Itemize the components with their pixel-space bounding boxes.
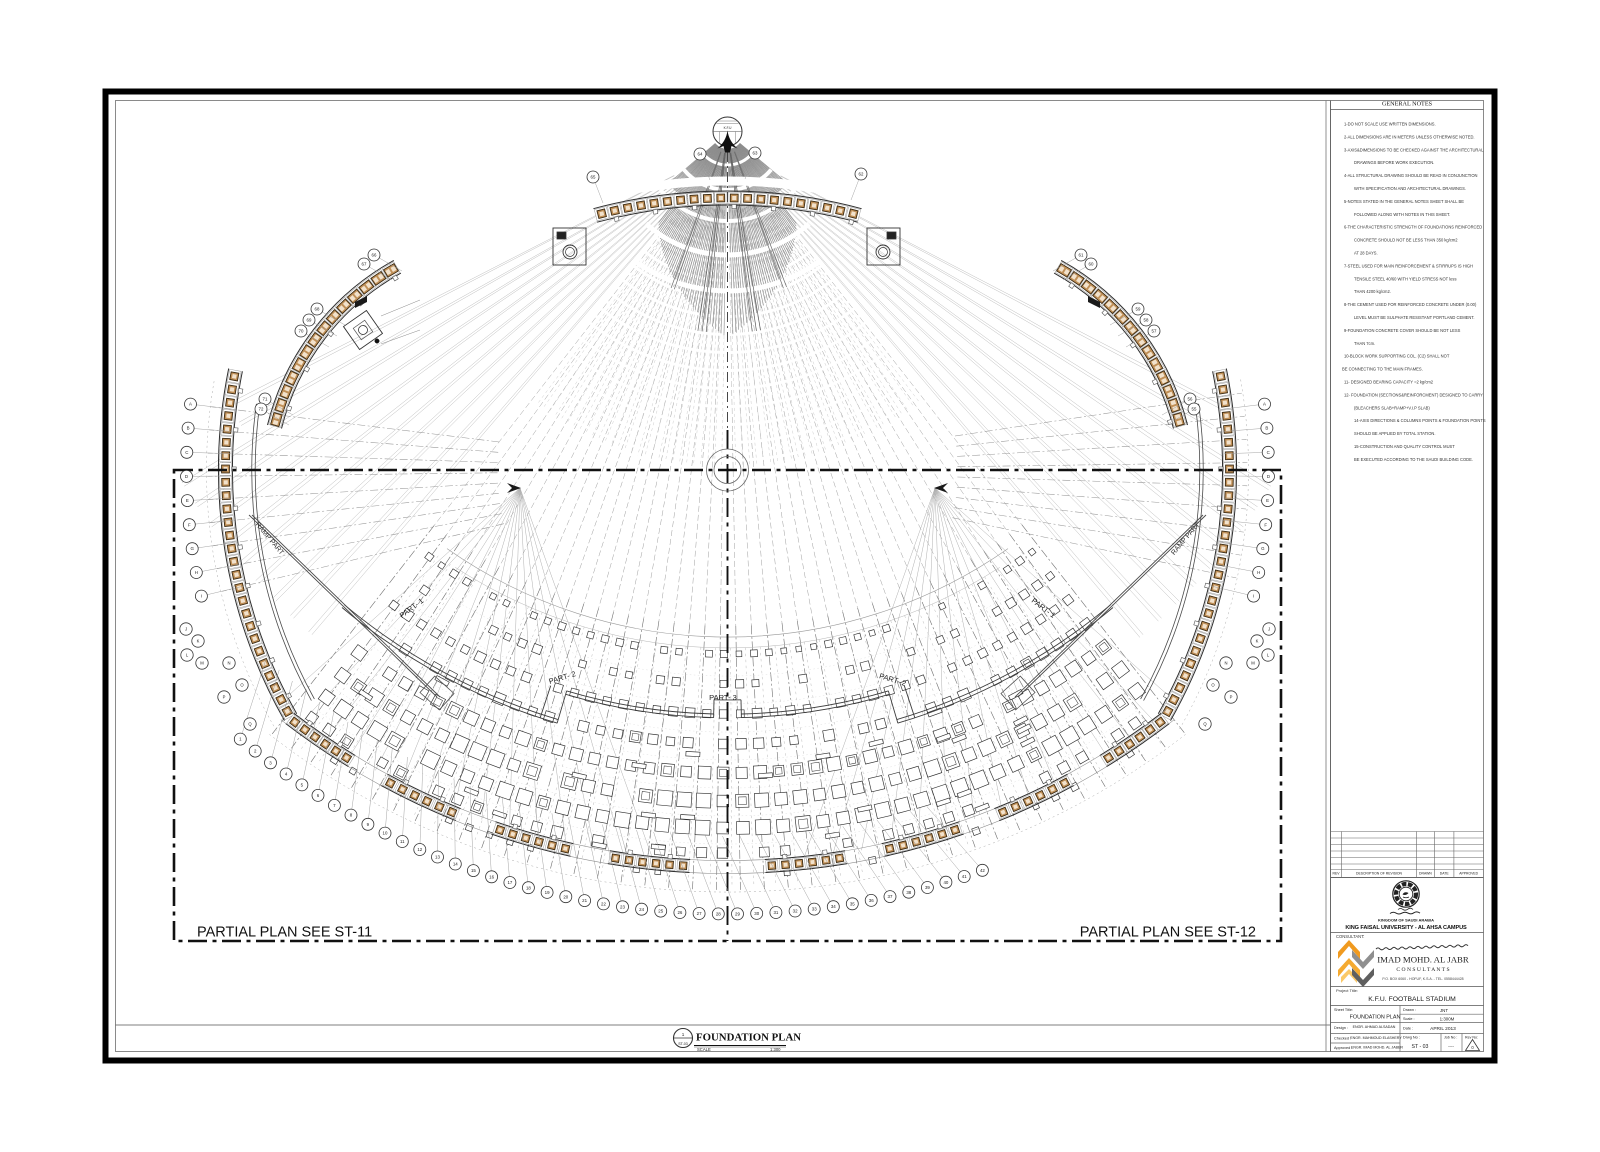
- svg-text:THAN 4200 kg/cm2.: THAN 4200 kg/cm2.: [1354, 289, 1391, 294]
- svg-text:I: I: [1253, 594, 1254, 599]
- svg-text:55: 55: [1192, 407, 1197, 412]
- svg-text:N: N: [1224, 661, 1227, 666]
- svg-text:IMAD MOHD. AL JABR: IMAD MOHD. AL JABR: [1377, 955, 1469, 965]
- svg-text:K: K: [197, 639, 200, 644]
- svg-text:23: 23: [620, 904, 625, 909]
- svg-text:14-AXIS DIRECTIONS & COLUMNS P: 14-AXIS DIRECTIONS & COLUMNS POINTS & FO…: [1354, 418, 1486, 423]
- svg-text:H: H: [1257, 570, 1260, 575]
- svg-text:CONCRETE SHOULD NOT BE LESS TH: CONCRETE SHOULD NOT BE LESS THAN 350 kg/…: [1354, 238, 1458, 243]
- svg-text:DRAWINGS BEFORE WORK EXECUTION: DRAWINGS BEFORE WORK EXECUTION.: [1354, 160, 1434, 165]
- svg-text:A: A: [189, 402, 192, 407]
- svg-text:TENSILE STEEL 40/60 WITH YIELD: TENSILE STEEL 40/60 WITH YIELD STRESS NO…: [1354, 276, 1457, 281]
- svg-text:13: 13: [435, 855, 440, 860]
- svg-text:M: M: [1251, 661, 1255, 666]
- svg-text:P: P: [1230, 695, 1233, 700]
- svg-text:D: D: [185, 474, 188, 479]
- svg-text:70: 70: [299, 329, 304, 334]
- svg-text:CONSULTANT:: CONSULTANT:: [1336, 934, 1364, 939]
- svg-text:ENGR. IMAD MOHD. AL JABER: ENGR. IMAD MOHD. AL JABER: [1351, 1046, 1403, 1050]
- svg-text:39: 39: [925, 885, 930, 890]
- svg-text:32: 32: [793, 909, 798, 914]
- svg-text:E: E: [186, 498, 189, 503]
- svg-text:31: 31: [773, 910, 778, 915]
- svg-text:THAN 7cm.: THAN 7cm.: [1354, 341, 1375, 346]
- svg-text:APRIL 2013: APRIL 2013: [1430, 1026, 1456, 1032]
- svg-text:60: 60: [1089, 262, 1094, 267]
- svg-text:SCALE: SCALE: [697, 1047, 711, 1052]
- svg-text:P: P: [223, 695, 226, 700]
- svg-text:Design :: Design :: [1334, 1026, 1348, 1030]
- svg-text:H: H: [195, 570, 198, 575]
- svg-text:12- FOUNDATION (SECTIONS&REINF: 12- FOUNDATION (SECTIONS&REINFORCMENT) D…: [1344, 392, 1483, 397]
- svg-text:K.F.U. FOOTBALL STADIUM: K.F.U. FOOTBALL STADIUM: [1368, 996, 1456, 1003]
- svg-text:16: 16: [489, 874, 494, 879]
- svg-text:28: 28: [716, 912, 721, 917]
- svg-text:KING FAISAL UNIVERSITY - AL AH: KING FAISAL UNIVERSITY - AL AHSA CAMPUS: [1345, 925, 1467, 931]
- svg-text:FOUNDATION PLAN: FOUNDATION PLAN: [696, 1032, 801, 1044]
- svg-text:64: 64: [698, 152, 703, 157]
- svg-text:1-DO NOT SCALE USE WRITTEN DIM: 1-DO NOT SCALE USE WRITTEN DIMENSIONS.: [1344, 122, 1436, 127]
- svg-text:21: 21: [582, 898, 587, 903]
- svg-text:F: F: [188, 522, 191, 527]
- svg-text:3-AXIS&DIMENSIONS TO BE CHECKE: 3-AXIS&DIMENSIONS TO BE CHECKED AGAINST …: [1344, 147, 1484, 152]
- svg-text:B: B: [1265, 426, 1268, 431]
- svg-text:7-STEEL USED FOR MAIN REINFORC: 7-STEEL USED FOR MAIN REINFORCEMENT & ST…: [1344, 263, 1473, 268]
- svg-text:SHOULD BE APPLIED BY TOTAL STA: SHOULD BE APPLIED BY TOTAL STATION.: [1354, 431, 1436, 436]
- svg-text:BE EXECUTED ACCORDING TO THE S: BE EXECUTED ACCORDING TO THE SAUDI BUILD…: [1354, 457, 1473, 462]
- svg-text:P.O. BOX 6060 - HOFUF, K.S.A.: P.O. BOX 6060 - HOFUF, K.S.A. - TEL. 055…: [1382, 977, 1463, 981]
- svg-text:PARTIAL PLAN SEE ST-11: PARTIAL PLAN SEE ST-11: [197, 925, 372, 941]
- svg-text:56: 56: [1188, 397, 1193, 402]
- svg-text:29: 29: [735, 912, 740, 917]
- svg-text:71: 71: [263, 397, 268, 402]
- svg-text:5-NOTES STATED IN THE GENERAL: 5-NOTES STATED IN THE GENERAL NOTES SHEE…: [1344, 199, 1464, 204]
- svg-text:E: E: [1266, 498, 1269, 503]
- svg-text:C: C: [185, 450, 188, 455]
- svg-text:10: 10: [383, 831, 388, 836]
- svg-text:G: G: [190, 546, 194, 551]
- svg-text:REV: REV: [1333, 872, 1341, 876]
- svg-text:Sheet Title:: Sheet Title:: [1334, 1008, 1353, 1012]
- svg-text:A: A: [1263, 402, 1266, 407]
- svg-text:68: 68: [315, 307, 320, 312]
- svg-text:15-CONSTRUCTION AND QUALITY CO: 15-CONSTRUCTION AND QUALITY CONTROL MUST: [1354, 444, 1455, 449]
- svg-text:24: 24: [639, 907, 644, 912]
- svg-text:59: 59: [1136, 307, 1141, 312]
- svg-text:61: 61: [1079, 253, 1084, 258]
- svg-text:K: K: [1256, 639, 1259, 644]
- svg-text:15: 15: [471, 868, 476, 873]
- svg-text:K.F.U: K.F.U: [724, 126, 732, 130]
- svg-text:AT 28 DAYS.: AT 28 DAYS.: [1354, 251, 1378, 256]
- svg-text:J: J: [185, 627, 187, 632]
- svg-text:FOUNDATION PLAN: FOUNDATION PLAN: [1350, 1015, 1401, 1021]
- svg-text:1:300M: 1:300M: [1440, 1017, 1455, 1022]
- svg-text:27: 27: [697, 911, 702, 916]
- svg-text:11: 11: [400, 839, 405, 844]
- svg-text:WITH SPECIFICATION AND ARCHITE: WITH SPECIFICATION AND ARCHITECTURAL DRA…: [1354, 186, 1466, 191]
- svg-text:FOLLOWED ALONG WITH NOTES IN T: FOLLOWED ALONG WITH NOTES IN THIS SHEET.: [1354, 212, 1450, 217]
- svg-text:Drawn :: Drawn :: [1403, 1008, 1416, 1012]
- svg-text:Job No :: Job No :: [1444, 1036, 1457, 1040]
- svg-text:Scale :: Scale :: [1403, 1017, 1415, 1021]
- svg-text:KINGDOM OF SAUDI ARABIA: KINGDOM OF SAUDI ARABIA: [1378, 918, 1434, 923]
- svg-text:12: 12: [417, 847, 422, 852]
- svg-text:Checked :: Checked :: [1334, 1037, 1351, 1041]
- svg-text:9-FOUNDATION CONCRETE COVER S: 9-FOUNDATION CONCRETE COVER SHOULD BE NO…: [1344, 328, 1461, 333]
- svg-text:20: 20: [563, 894, 568, 899]
- svg-text:DATE: DATE: [1440, 872, 1450, 876]
- svg-text:19: 19: [545, 890, 550, 895]
- svg-text:Project Title:: Project Title:: [1336, 988, 1358, 993]
- svg-text:LEVEL MUST BE SULPHATE RESISTA: LEVEL MUST BE SULPHATE RESISTANT PORTLAN…: [1354, 315, 1475, 320]
- svg-text:42: 42: [980, 868, 985, 873]
- svg-text:BE CONNECTING TO THE MAIN FRAM: BE CONNECTING TO THE MAIN FRAMES.: [1342, 367, 1423, 372]
- svg-text:22: 22: [601, 902, 606, 907]
- svg-text:18: 18: [526, 885, 531, 890]
- svg-text:I: I: [201, 594, 202, 599]
- svg-text:14: 14: [453, 862, 458, 867]
- svg-text:B: B: [187, 426, 190, 431]
- svg-text:C: C: [1267, 450, 1270, 455]
- svg-text:PART- 3: PART- 3: [709, 693, 737, 702]
- svg-text:62: 62: [859, 172, 864, 177]
- svg-text:11- DESIGNED BEARING CAPACITY: 11- DESIGNED BEARING CAPACITY =2 kg/cm2: [1344, 380, 1434, 385]
- svg-text:33: 33: [812, 907, 817, 912]
- svg-text:26: 26: [677, 910, 682, 915]
- svg-text:10-BLOCK WORK SUPPORTING COL.: 10-BLOCK WORK SUPPORTING COL. (C2) SHALL…: [1344, 354, 1450, 359]
- svg-text:J: J: [1268, 627, 1270, 632]
- svg-text:63: 63: [753, 151, 758, 156]
- svg-text:69: 69: [307, 318, 312, 323]
- svg-text:72: 72: [259, 407, 264, 412]
- svg-text:38: 38: [906, 890, 911, 895]
- svg-text:F: F: [1264, 522, 1267, 527]
- svg-text:D: D: [1267, 474, 1270, 479]
- svg-text:4-ALL STRUCTURAL DRAWING SHOUL: 4-ALL STRUCTURAL DRAWING SHOULD BE READ …: [1344, 173, 1478, 178]
- svg-text:66: 66: [372, 253, 377, 258]
- svg-text:DESCRIPTION OF REVISION: DESCRIPTION OF REVISION: [1356, 872, 1403, 876]
- svg-text:35: 35: [850, 901, 855, 906]
- svg-text:ENGR. AHMAD ALSADAN: ENGR. AHMAD ALSADAN: [1353, 1025, 1396, 1029]
- svg-text:GENERAL NOTES: GENERAL NOTES: [1382, 101, 1433, 108]
- svg-text:C O N S U L T A N T S: C O N S U L T A N T S: [1396, 967, 1449, 973]
- svg-text:DRAWN: DRAWN: [1419, 872, 1432, 876]
- svg-text:Drwg No :: Drwg No :: [1403, 1036, 1420, 1040]
- svg-text:40: 40: [943, 880, 948, 885]
- svg-text:34: 34: [831, 904, 836, 909]
- svg-text:G: G: [1261, 546, 1265, 551]
- svg-text:ST - 03: ST - 03: [1412, 1044, 1429, 1050]
- svg-text:25: 25: [658, 909, 663, 914]
- svg-text:57: 57: [1152, 329, 1157, 334]
- svg-text:APPROVED: APPROVED: [1459, 872, 1478, 876]
- svg-text:41: 41: [962, 874, 967, 879]
- svg-text:1: 1: [682, 1032, 685, 1037]
- svg-text:ENGR. MAHMOUD ELASHERY: ENGR. MAHMOUD ELASHERY: [1350, 1036, 1402, 1040]
- svg-text:(BLEACHERS SLAB+RAMP+V.I.P SLA: (BLEACHERS SLAB+RAMP+V.I.P SLAB): [1354, 405, 1430, 410]
- svg-text:Rev No:: Rev No:: [1465, 1036, 1478, 1040]
- svg-text:67: 67: [362, 262, 367, 267]
- svg-text:65: 65: [591, 175, 596, 180]
- svg-text:6-THE CHARACTERISTIC STRENGTH: 6-THE CHARACTERISTIC STRENGTH OF FOUNDAT…: [1344, 225, 1482, 230]
- svg-text:37: 37: [888, 894, 893, 899]
- svg-text:PARTIAL PLAN SEE ST-12: PARTIAL PLAN SEE ST-12: [1080, 925, 1256, 941]
- svg-text:M: M: [200, 661, 204, 666]
- svg-text:58: 58: [1144, 318, 1149, 323]
- svg-text:----: ----: [1448, 1044, 1454, 1049]
- svg-text:JNT: JNT: [1440, 1008, 1448, 1013]
- svg-text:30: 30: [754, 911, 759, 916]
- svg-text:ST-03: ST-03: [678, 1042, 688, 1046]
- svg-text:2-ALL DIMENSIONS ARE IN METERS: 2-ALL DIMENSIONS ARE IN METERS UNLESS OT…: [1344, 134, 1475, 139]
- svg-text:36: 36: [869, 898, 874, 903]
- svg-text:Date :: Date :: [1403, 1027, 1413, 1031]
- svg-text:N: N: [227, 661, 230, 666]
- svg-text:8-THE CEMENT USED FOR REINFORC: 8-THE CEMENT USED FOR REINFORCED CONCRET…: [1344, 302, 1477, 307]
- svg-text:Approved :: Approved :: [1334, 1046, 1352, 1050]
- svg-text:1:300: 1:300: [770, 1047, 781, 1052]
- svg-text:17: 17: [507, 880, 512, 885]
